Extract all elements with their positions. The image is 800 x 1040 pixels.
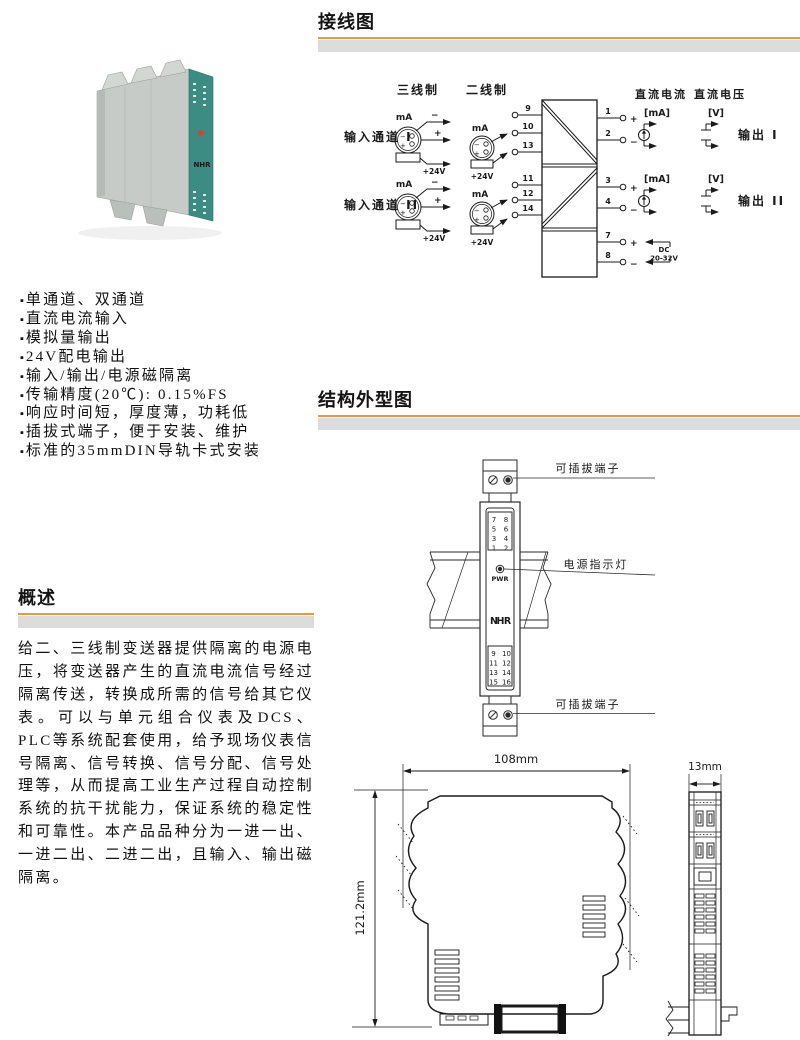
- feature-item: 直流电流输入: [20, 311, 320, 330]
- feature-item: 标准的35mmDIN导轨卡式安装: [20, 443, 320, 462]
- svg-text:2: 2: [504, 545, 508, 553]
- accent-line: [18, 613, 314, 615]
- svg-text:+24V: +24V: [423, 167, 446, 176]
- svg-text:DC: DC: [659, 246, 670, 254]
- label-input-ch2: 输入通道 II: [344, 197, 419, 212]
- svg-text:[mA]: [mA]: [644, 174, 670, 185]
- dim-width-label: 108mm: [494, 752, 538, 766]
- dimension-drawings: 108mm 121.2mm: [340, 748, 800, 1040]
- feature-list: 单通道、双通道 直流电流输入 模拟量输出 24V配电输出 输入/输出/电源磁隔离…: [20, 292, 320, 462]
- bottom-terminal-block: [483, 704, 517, 736]
- svg-text:+: +: [474, 216, 480, 224]
- svg-text:4: 4: [504, 535, 509, 543]
- structure-outline-diagram: 7 8 5 6 3 4 1 2 PWR N H R 9 10 11 12 13: [420, 450, 720, 740]
- svg-text:PWR: PWR: [492, 575, 509, 583]
- svg-text:7: 7: [605, 231, 611, 240]
- product-photo: NHR: [55, 45, 245, 245]
- svg-text:9: 9: [491, 650, 495, 658]
- svg-text:+24V: +24V: [471, 238, 494, 247]
- svg-text:5: 5: [492, 526, 496, 534]
- svg-text:3: 3: [492, 535, 496, 543]
- vent-slots-right: [583, 896, 605, 937]
- power-led: [199, 131, 204, 136]
- svg-text:8: 8: [605, 251, 611, 260]
- svg-text:+: +: [434, 196, 442, 206]
- vent-slots-left: [435, 950, 459, 1000]
- svg-text:14: 14: [502, 669, 511, 677]
- feature-item: 输入/输出/电源磁隔离: [20, 368, 320, 387]
- callout-pluggable-terminal-top: 可插拔端子: [556, 461, 621, 475]
- section-overview-header: 概述: [18, 588, 314, 628]
- svg-text:10: 10: [522, 122, 534, 131]
- isolator-block: [542, 100, 597, 277]
- top-terminal-block: [483, 460, 517, 493]
- feature-item: 24V配电输出: [20, 349, 320, 368]
- wiring-title: 接线图: [318, 12, 800, 32]
- svg-text:−: −: [400, 133, 406, 141]
- svg-text:−: −: [630, 138, 638, 148]
- label-dc-voltage: 直流电压: [694, 87, 746, 101]
- section-wiring-header: 接线图: [318, 12, 800, 52]
- svg-text:8: 8: [504, 516, 508, 524]
- gray-bar: [318, 418, 800, 430]
- svg-text:+: +: [474, 150, 480, 158]
- feature-item: 传输精度(20℃): 0.15%FS: [20, 387, 320, 406]
- feature-item: 响应时间短，厚度薄，功耗低: [20, 405, 320, 424]
- transmitter-3wire-ch2: mA − + − + +24V: [395, 178, 450, 243]
- svg-text:9: 9: [525, 104, 531, 113]
- feature-item: 插拔式端子，便于安装、维护: [20, 424, 320, 443]
- output-terminals: 1 + 2 − 3 + 4 − 7 + 8 −: [597, 107, 638, 270]
- svg-text:[mA]: [mA]: [644, 108, 670, 119]
- label-output2: 输出 II: [738, 193, 785, 208]
- wiring-diagram: 三线制 二线制 输入通道 I 输入通道 II mA − + − + +24V m…: [330, 78, 800, 288]
- transmitter-3wire-ch1: mA − + − + +24V: [395, 111, 450, 176]
- svg-text:3: 3: [605, 176, 611, 185]
- power-supply-symbol: DC 20-32V: [646, 242, 678, 263]
- svg-text:−: −: [400, 200, 406, 208]
- structure-title: 结构外型图: [318, 390, 800, 410]
- bottom-neck: [489, 696, 511, 704]
- svg-text:−: −: [431, 178, 439, 188]
- svg-text:13: 13: [489, 669, 498, 677]
- callouts: 可插拔端子 电源指示灯 可插拔端子: [504, 461, 655, 714]
- svg-text:−: −: [474, 207, 480, 215]
- label-three-wire: 三线制: [397, 82, 439, 97]
- nhr-logo: N H R: [490, 616, 512, 627]
- input-terminals: 9 10 13 11 12 14: [512, 104, 542, 218]
- dim-height-label: 121.2mm: [353, 880, 367, 935]
- svg-text:16: 16: [502, 679, 511, 687]
- feature-item: 模拟量输出: [20, 330, 320, 349]
- gray-bar: [18, 616, 314, 628]
- feature-item: 单通道、双通道: [20, 292, 320, 311]
- svg-text:+24V: +24V: [423, 234, 446, 243]
- svg-text:+: +: [630, 184, 638, 194]
- photo-logo: NHR: [193, 161, 211, 169]
- accent-line: [318, 37, 800, 39]
- label-output1: 输出 I: [738, 127, 779, 142]
- svg-text:[V]: [V]: [708, 108, 724, 119]
- callout-power-indicator: 电源指示灯: [564, 557, 629, 571]
- front-view: 13mm: [666, 761, 737, 1036]
- svg-text:13: 13: [522, 141, 533, 150]
- photo-shadow: [78, 226, 222, 240]
- svg-text:mA: mA: [472, 190, 488, 200]
- overview-title: 概述: [18, 588, 314, 608]
- svg-text:4: 4: [605, 197, 611, 206]
- svg-text:mA: mA: [396, 113, 412, 123]
- svg-text:1: 1: [605, 107, 611, 116]
- svg-text:15: 15: [489, 679, 498, 687]
- svg-text:+: +: [434, 129, 442, 139]
- svg-text:−: −: [630, 260, 638, 270]
- side-view: 108mm 121.2mm: [352, 752, 639, 1034]
- module-body: [97, 69, 189, 215]
- overview-paragraph: 给二、三线制变送器提供隔离的电源电压，将变送器产生的直流电流信号经过隔离传送，转…: [18, 638, 314, 890]
- svg-text:11: 11: [522, 174, 534, 183]
- svg-text:mA: mA: [472, 124, 488, 134]
- svg-text:+: +: [630, 239, 638, 249]
- bottom-connector: [494, 1004, 566, 1034]
- dotted-marks: [396, 816, 639, 962]
- svg-text:+: +: [630, 115, 638, 125]
- svg-text:[V]: [V]: [708, 174, 724, 185]
- svg-text:14: 14: [522, 204, 534, 213]
- output2-symbols: [mA] [V]: [639, 174, 725, 212]
- label-two-wire: 二线制: [466, 82, 508, 97]
- svg-text:+: +: [400, 142, 406, 150]
- svg-text:20-32V: 20-32V: [650, 255, 678, 263]
- gray-bar: [318, 40, 800, 52]
- svg-text:+: +: [400, 209, 406, 217]
- svg-text:10: 10: [502, 650, 511, 658]
- section-structure-header: 结构外型图: [318, 390, 800, 430]
- transmitter-2wire-ch1: mA − + +24V: [470, 124, 507, 181]
- svg-text:12: 12: [502, 660, 511, 668]
- transmitter-2wire-ch2: mA − + +24V: [470, 190, 507, 247]
- svg-text:1: 1: [492, 545, 496, 553]
- label-dc-current: 直流电流: [635, 87, 687, 101]
- dim-thickness-label: 13mm: [688, 761, 722, 773]
- svg-text:mA: mA: [396, 180, 412, 190]
- svg-text:6: 6: [504, 526, 509, 534]
- svg-text:2: 2: [605, 129, 611, 138]
- callout-pluggable-terminal-bottom: 可插拔端子: [556, 697, 621, 711]
- svg-text:−: −: [431, 111, 439, 121]
- front-panel: [189, 69, 213, 221]
- svg-text:−: −: [630, 206, 638, 216]
- svg-text:+24V: +24V: [471, 172, 494, 181]
- module-spine: [97, 89, 105, 197]
- svg-text:12: 12: [522, 189, 533, 198]
- svg-text:−: −: [474, 141, 480, 149]
- svg-text:R: R: [504, 616, 512, 627]
- output1-symbols: [mA] [V]: [639, 108, 725, 146]
- top-neck: [489, 493, 511, 502]
- svg-text:11: 11: [489, 660, 498, 668]
- svg-text:7: 7: [492, 516, 496, 524]
- din-clip: [440, 1014, 488, 1025]
- accent-line: [318, 415, 800, 417]
